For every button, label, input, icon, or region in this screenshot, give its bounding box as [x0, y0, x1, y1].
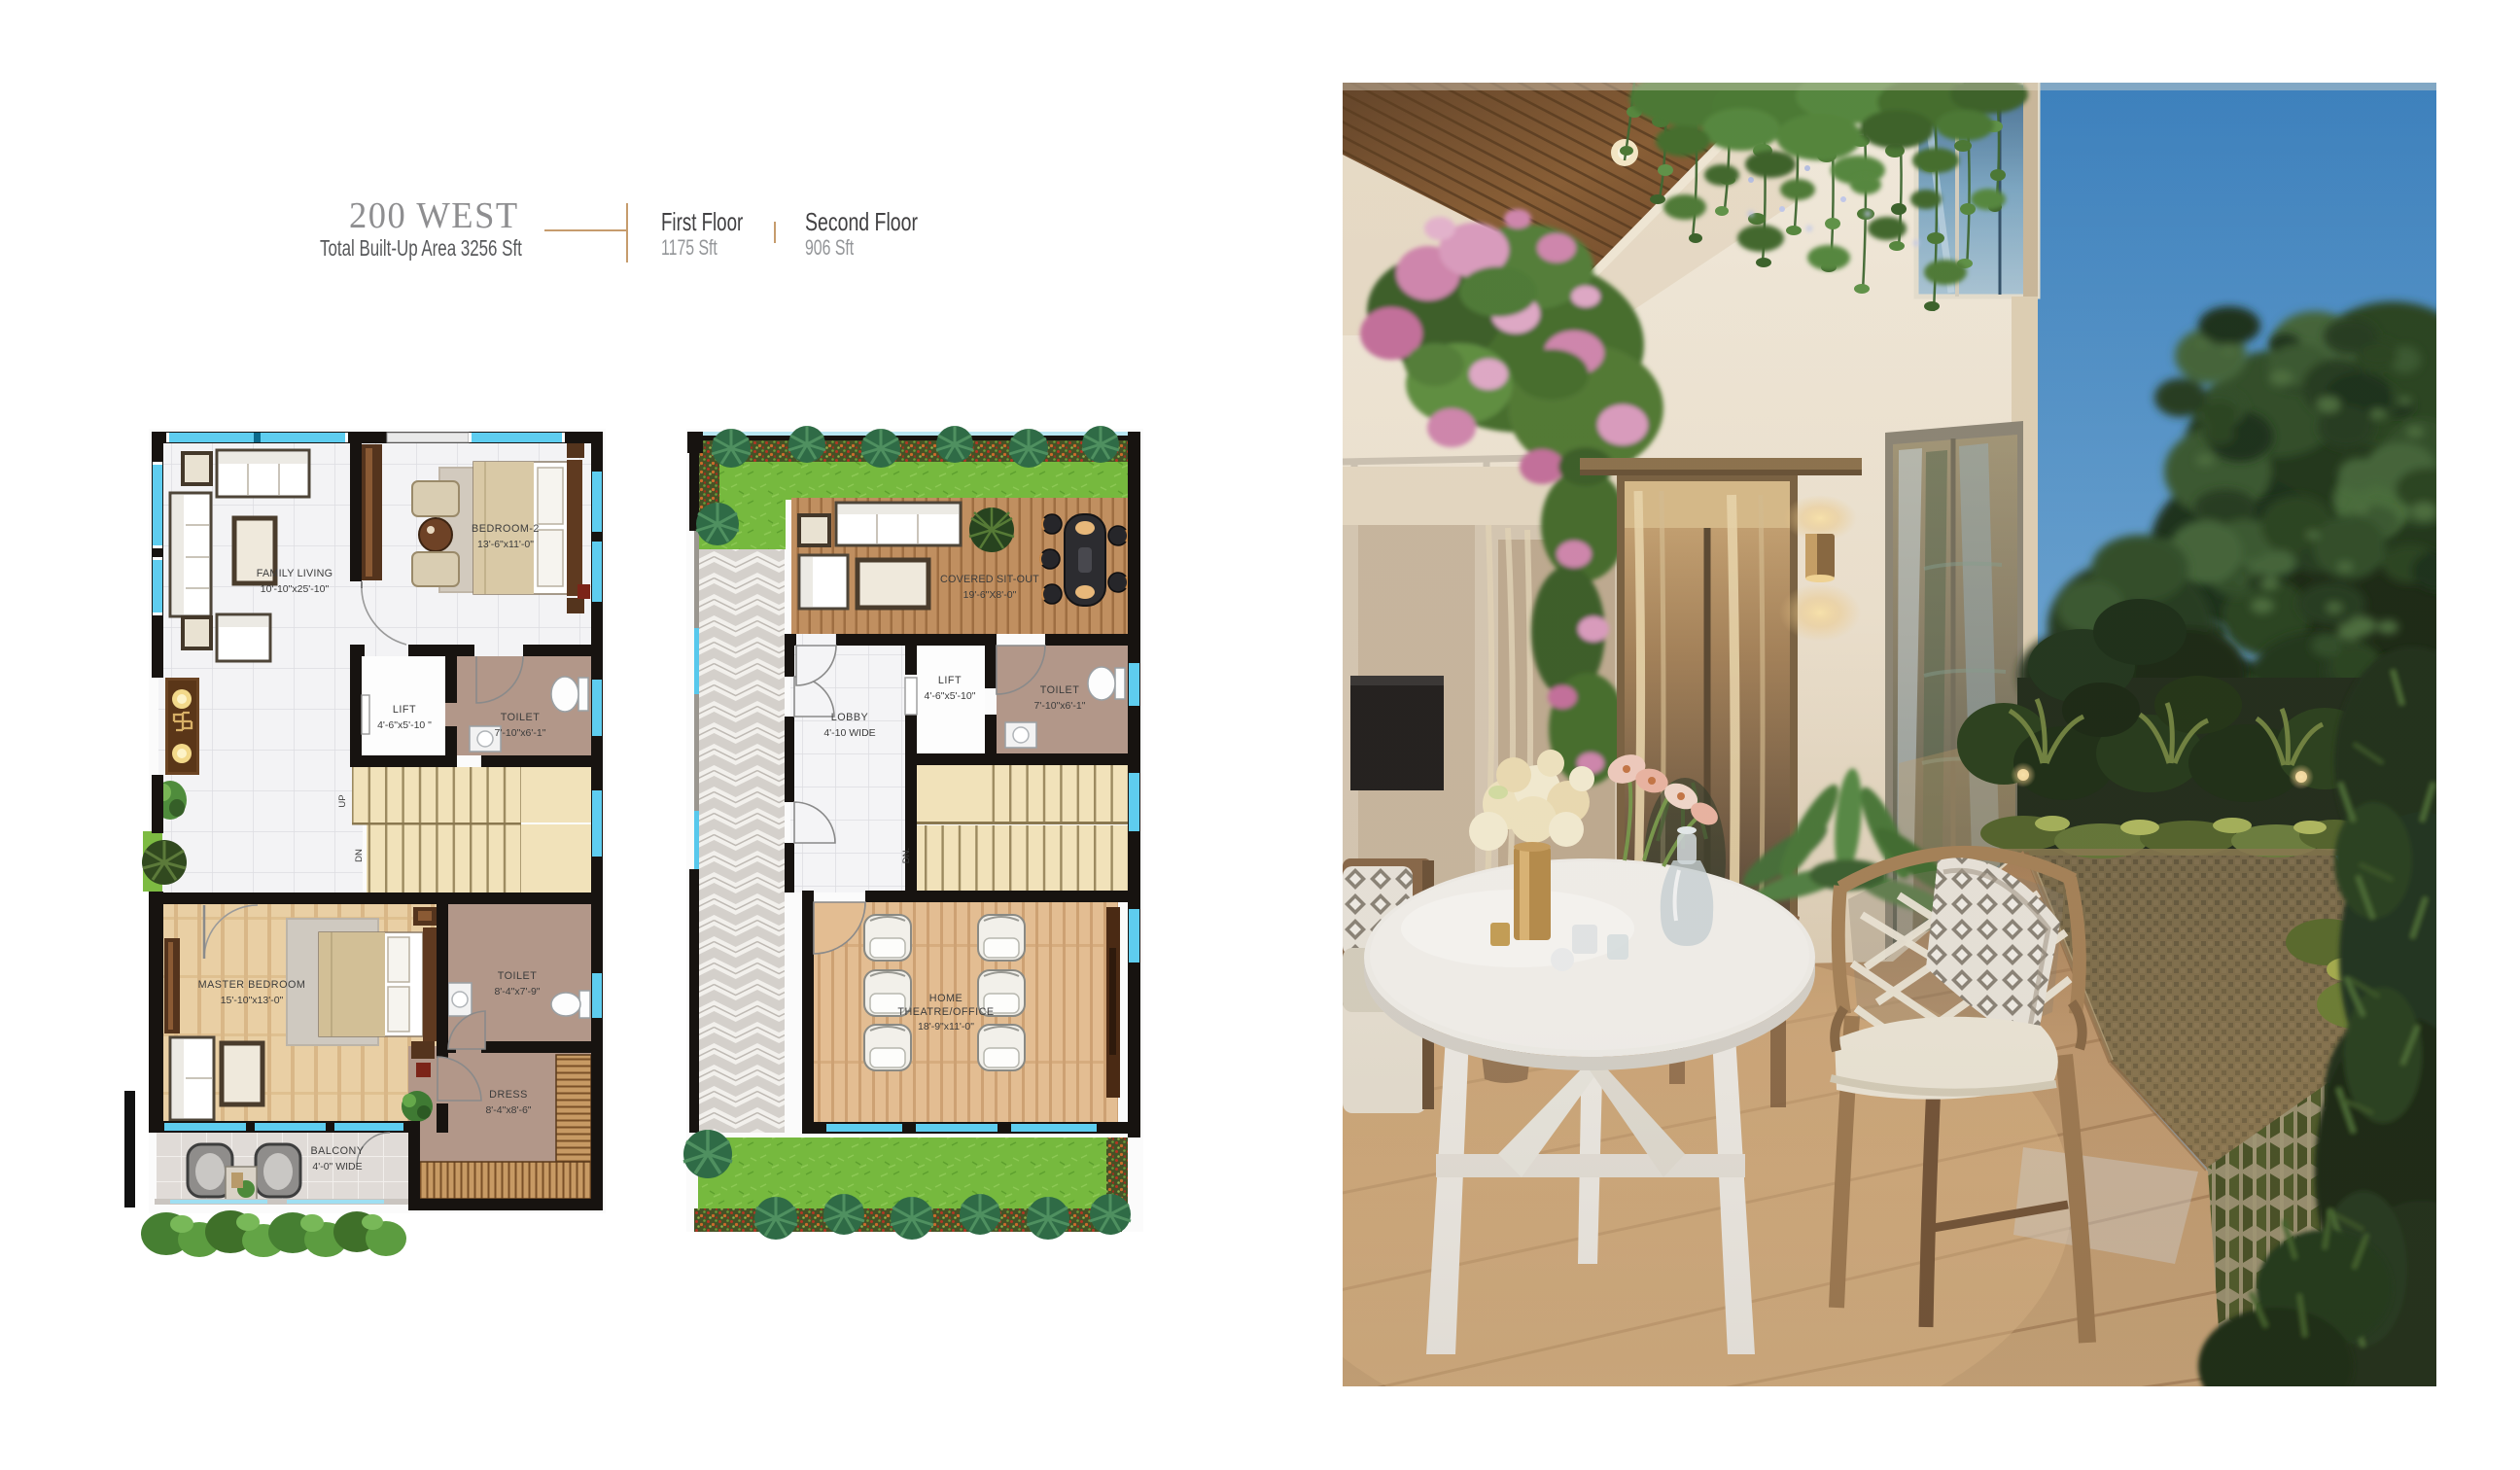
svg-text:4'-0" WIDE: 4'-0" WIDE: [312, 1161, 362, 1172]
svg-text:7'-10"x6'-1": 7'-10"x6'-1": [1034, 700, 1086, 712]
svg-text:TOILET: TOILET: [501, 712, 541, 723]
svg-text:TOILET: TOILET: [1040, 684, 1080, 696]
svg-text:8'-4"x8'-6": 8'-4"x8'-6": [485, 1104, 531, 1116]
svg-text:THEATRE/OFFICE: THEATRE/OFFICE: [897, 1006, 994, 1018]
svg-text:MASTER BEDROOM: MASTER BEDROOM: [198, 979, 306, 991]
svg-text:7'-10"x6'-1": 7'-10"x6'-1": [495, 727, 546, 739]
svg-text:13'-6"x11'-0": 13'-6"x11'-0": [477, 539, 534, 550]
svg-text:DN: DN: [354, 849, 365, 862]
svg-text:HOME: HOME: [929, 993, 962, 1004]
svg-text:DRESS: DRESS: [489, 1089, 528, 1101]
svg-text:TOILET: TOILET: [498, 970, 538, 982]
svg-text:4'-6"x5'-10": 4'-6"x5'-10": [925, 690, 976, 702]
svg-text:UP: UP: [337, 794, 348, 807]
svg-text:COVERED SIT-OUT: COVERED SIT-OUT: [940, 574, 1039, 585]
svg-text:LOBBY: LOBBY: [831, 712, 869, 723]
svg-text:LIFT: LIFT: [393, 704, 416, 716]
svg-text:4'-6"x5'-10 ": 4'-6"x5'-10 ": [377, 719, 432, 731]
svg-text:DN.: DN.: [901, 848, 912, 863]
svg-text:15'-10"x13'-0": 15'-10"x13'-0": [221, 995, 284, 1006]
svg-text:BALCONY: BALCONY: [310, 1145, 364, 1157]
svg-text:4'-10 WIDE: 4'-10 WIDE: [823, 727, 875, 739]
svg-text:19'-6"X8'-0": 19'-6"X8'-0": [963, 589, 1017, 601]
svg-text:LIFT: LIFT: [938, 675, 962, 686]
svg-text:8'-4"x7'-9": 8'-4"x7'-9": [494, 986, 540, 997]
svg-text:FAMILY LIVING: FAMILY LIVING: [257, 568, 332, 579]
svg-text:18'-9"x11'-0": 18'-9"x11'-0": [918, 1021, 974, 1032]
svg-text:10'-10"x25'-10": 10'-10"x25'-10": [261, 583, 330, 595]
svg-text:BEDROOM-2: BEDROOM-2: [472, 523, 540, 535]
